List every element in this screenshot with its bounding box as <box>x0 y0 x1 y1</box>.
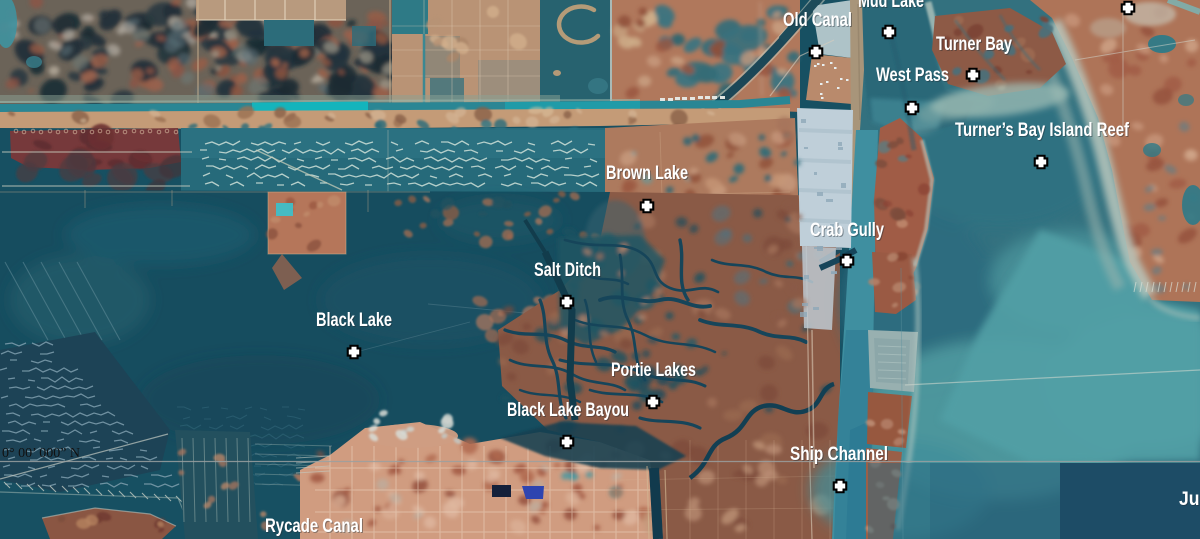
svg-text:Mud Lake: Mud Lake <box>858 0 924 12</box>
svg-text:Rycade Canal: Rycade Canal <box>265 516 363 537</box>
svg-text:Ship Channel: Ship Channel <box>790 444 888 465</box>
svg-text:Turner’s Bay Island Reef: Turner’s Bay Island Reef <box>955 120 1130 141</box>
svg-text:Black Lake: Black Lake <box>316 310 392 331</box>
svg-text:Black Lake Bayou: Black Lake Bayou <box>507 400 629 421</box>
svg-text:Old Canal: Old Canal <box>783 10 852 31</box>
svg-text:Turner Bay: Turner Bay <box>936 34 1012 55</box>
svg-text:0° 00’ 000” N: 0° 00’ 000” N <box>2 446 80 461</box>
svg-text:West Pass: West Pass <box>876 65 949 86</box>
svg-text:Portie Lakes: Portie Lakes <box>611 360 696 381</box>
svg-text:Julia: Julia <box>1179 489 1200 510</box>
svg-text:Brown Lake: Brown Lake <box>606 163 688 184</box>
svg-text:Crab Gully: Crab Gully <box>810 220 884 241</box>
svg-text:Salt Ditch: Salt Ditch <box>534 260 601 281</box>
